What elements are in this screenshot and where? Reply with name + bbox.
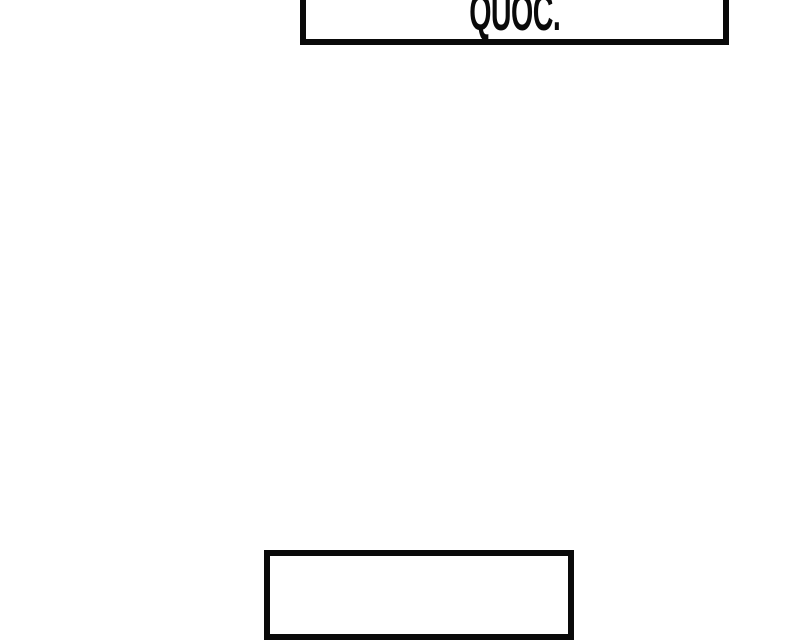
caption-box-bottom (264, 550, 574, 640)
caption-text-top: QUOC. (469, 0, 560, 39)
comic-page-background: QUOC. (0, 0, 800, 600)
caption-box-top: QUOC. (300, 0, 729, 45)
